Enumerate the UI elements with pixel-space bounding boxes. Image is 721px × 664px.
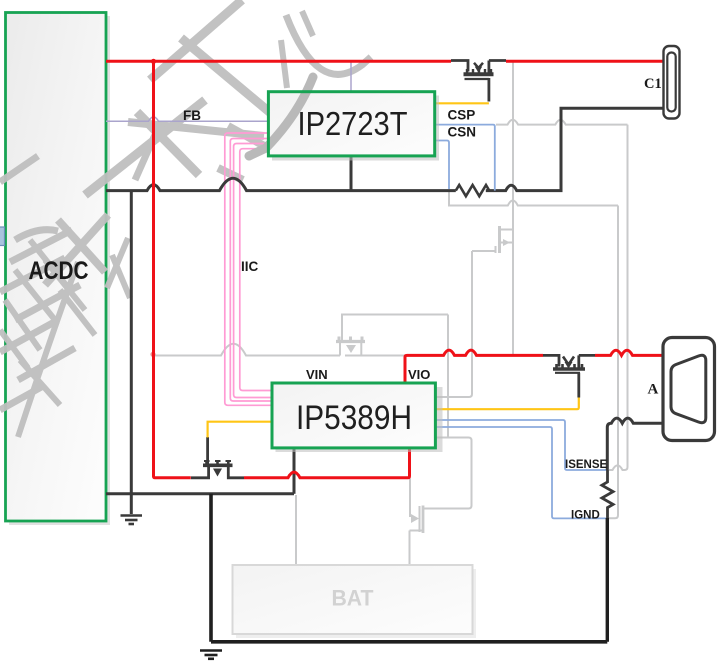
svg-text:ACDC: ACDC	[29, 257, 89, 285]
svg-text:IP5389H: IP5389H	[296, 399, 412, 437]
svg-text:IIC: IIC	[241, 259, 259, 274]
svg-text:A: A	[648, 382, 659, 398]
svg-text:VIN: VIN	[306, 367, 328, 382]
svg-text:C1: C1	[644, 76, 662, 92]
svg-text:IGND: IGND	[571, 510, 600, 522]
svg-text:FB: FB	[183, 108, 201, 123]
svg-text:CSP: CSP	[448, 108, 476, 123]
svg-text:IP2723T: IP2723T	[298, 105, 408, 142]
svg-text:VIO: VIO	[408, 367, 430, 382]
svg-text:BAT: BAT	[332, 586, 375, 611]
svg-text:ISENSE: ISENSE	[565, 459, 608, 471]
svg-text:CSN: CSN	[448, 125, 477, 140]
